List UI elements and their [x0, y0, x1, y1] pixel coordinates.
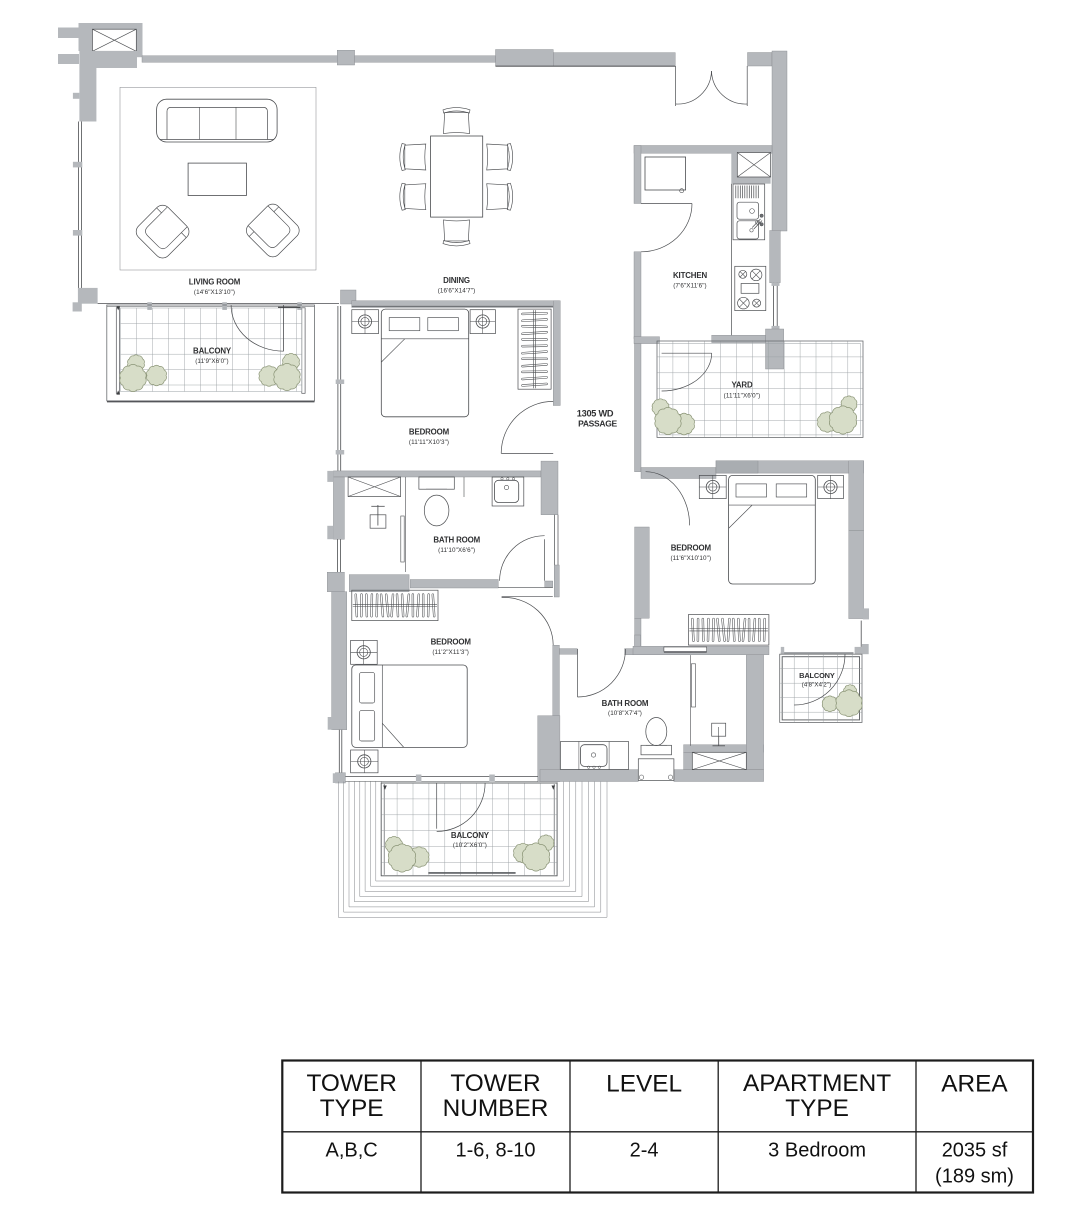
svg-text:(189 sm): (189 sm) [935, 1166, 1014, 1188]
svg-text:(10'8"X7'4"): (10'8"X7'4") [608, 710, 642, 717]
svg-text:(14'6"X13'10"): (14'6"X13'10") [194, 289, 235, 296]
svg-text:BATH ROOM: BATH ROOM [433, 536, 480, 545]
svg-text:BEDROOM: BEDROOM [671, 543, 712, 552]
svg-text:A,B,C: A,B,C [326, 1139, 378, 1161]
svg-text:TOWER: TOWER [306, 1070, 396, 1097]
svg-text:2035 sf: 2035 sf [942, 1140, 1008, 1162]
svg-text:DINING: DINING [443, 276, 470, 285]
svg-text:(7'6"X11'6"): (7'6"X11'6") [673, 282, 707, 289]
svg-text:LIVING ROOM: LIVING ROOM [189, 278, 241, 287]
svg-text:1305 WD: 1305 WD [577, 408, 614, 418]
svg-text:PASSAGE: PASSAGE [578, 418, 617, 428]
svg-text:(4'8"X4'2"): (4'8"X4'2") [802, 681, 831, 688]
svg-text:BATH ROOM: BATH ROOM [602, 699, 649, 708]
svg-text:YARD: YARD [731, 381, 752, 390]
svg-text:(11'11"X10'3"): (11'11"X10'3") [409, 439, 449, 446]
svg-text:(11'2"X11'3"): (11'2"X11'3") [432, 649, 469, 656]
svg-text:(11'9"X6'0"): (11'9"X6'0") [195, 358, 229, 365]
svg-text:1-6, 8-10: 1-6, 8-10 [455, 1139, 535, 1161]
svg-text:TYPE: TYPE [320, 1095, 384, 1122]
svg-text:APARTMENT: APARTMENT [743, 1070, 891, 1097]
svg-text:AREA: AREA [941, 1071, 1008, 1098]
svg-text:LEVEL: LEVEL [606, 1071, 682, 1098]
svg-text:NUMBER: NUMBER [443, 1095, 549, 1122]
svg-text:(11'6"X10'10"): (11'6"X10'10") [670, 555, 711, 562]
svg-text:(11'10"X6'6"): (11'10"X6'6") [438, 547, 475, 554]
svg-text:BEDROOM: BEDROOM [409, 427, 450, 436]
svg-text:TOWER: TOWER [450, 1070, 540, 1097]
svg-text:(10'2"X6'0"): (10'2"X6'0") [453, 842, 487, 849]
svg-text:(11'11"X6'0"): (11'11"X6'0") [724, 392, 761, 399]
svg-text:BALCONY: BALCONY [193, 347, 232, 356]
svg-text:(16'6"X14'7"): (16'6"X14'7") [438, 287, 476, 294]
svg-text:BALCONY: BALCONY [451, 831, 490, 840]
svg-text:3 Bedroom: 3 Bedroom [768, 1139, 866, 1161]
svg-text:TYPE: TYPE [785, 1095, 849, 1122]
svg-text:BALCONY: BALCONY [799, 671, 835, 680]
svg-text:KITCHEN: KITCHEN [673, 271, 707, 280]
svg-text:2-4: 2-4 [630, 1139, 659, 1161]
svg-text:BEDROOM: BEDROOM [431, 637, 472, 646]
